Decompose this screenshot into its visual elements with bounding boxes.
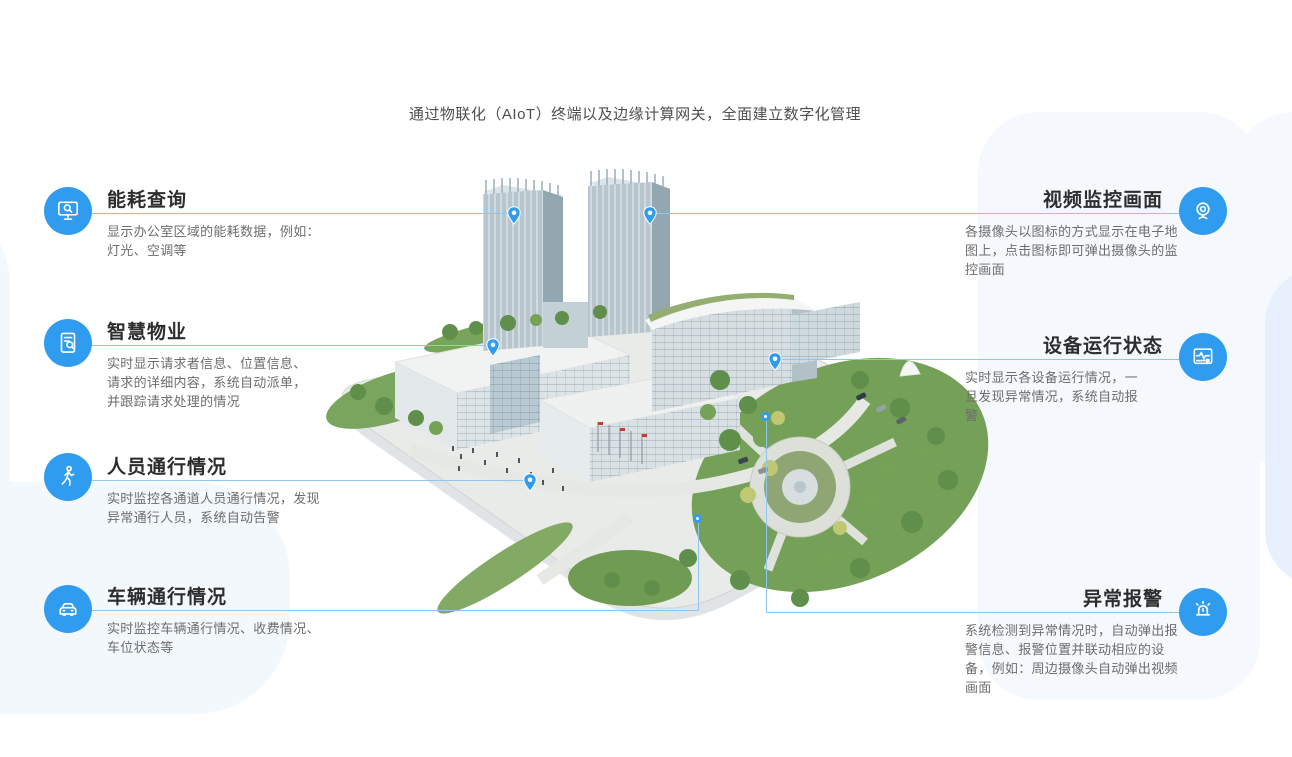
connector-line: [766, 612, 1179, 613]
feature-icon-energy: [44, 187, 92, 235]
feature-desc: 实时显示各设备运行情况，一 旦发现异常情况，系统自动报 警: [965, 368, 1197, 425]
connector-line: [92, 610, 698, 611]
connector-line: [650, 213, 1179, 214]
aiot-feature-diagram: 通过物联化（AIoT）终端以及边缘计算网关，全面建立数字化管理: [0, 0, 1292, 757]
map-pin: [768, 352, 782, 371]
connector-line: [92, 345, 493, 346]
feature-icon-pedestrian: [44, 453, 92, 501]
feature-title: 车辆通行情况: [107, 582, 227, 609]
background-shape: [1265, 268, 1292, 586]
connector-line: [92, 480, 530, 481]
feature-desc: 实时监控各通道人员通行情况，发现 异常通行人员，系统自动告警: [107, 489, 339, 527]
feature-desc: 显示办公室区域的能耗数据，例如： 灯光、空调等: [107, 222, 339, 260]
pedestrian-icon: [55, 464, 81, 490]
feature-title: 智慧物业: [107, 317, 187, 344]
feature-icon-vehicle: [44, 585, 92, 633]
map-pin: [523, 473, 537, 492]
connector-line: [766, 417, 767, 613]
feature-title: 视频监控画面: [965, 185, 1163, 212]
feature-title: 设备运行状态: [965, 331, 1163, 358]
map-pin: [507, 206, 521, 225]
document-search-icon: [55, 330, 81, 356]
connector-line: [698, 519, 699, 611]
feature-desc: 实时显示请求者信息、位置信息、 请求的详细内容，系统自动派单， 并跟踪请求处理的…: [107, 354, 339, 411]
feature-title: 人员通行情况: [107, 452, 227, 479]
feature-title: 能耗查询: [107, 185, 187, 212]
feature-icon-property: [44, 319, 92, 367]
page-title: 通过物联化（AIoT）终端以及边缘计算网关，全面建立数字化管理: [0, 103, 1270, 124]
map-pin: [643, 206, 657, 225]
feature-title: 异常报警: [965, 584, 1163, 611]
map-pin-dot: [761, 412, 770, 421]
connector-line: [92, 213, 514, 214]
device-status-icon: [1190, 344, 1216, 370]
monitor-search-icon: [55, 198, 81, 224]
webcam-icon: [1190, 198, 1216, 224]
map-pin-dot: [693, 514, 702, 523]
feature-desc: 实时监控车辆通行情况、收费情况、 车位状态等: [107, 619, 339, 657]
car-icon: [55, 596, 81, 622]
map-pin: [486, 338, 500, 357]
connector-line: [775, 359, 1179, 360]
feature-desc: 各摄像头以图标的方式显示在电子地 图上，点击图标即可弹出摄像头的监 控画面: [965, 222, 1197, 279]
feature-desc: 系统检测到异常情况时，自动弹出报 警信息、报警位置并联动相应的设 备，例如：周边…: [965, 621, 1197, 697]
